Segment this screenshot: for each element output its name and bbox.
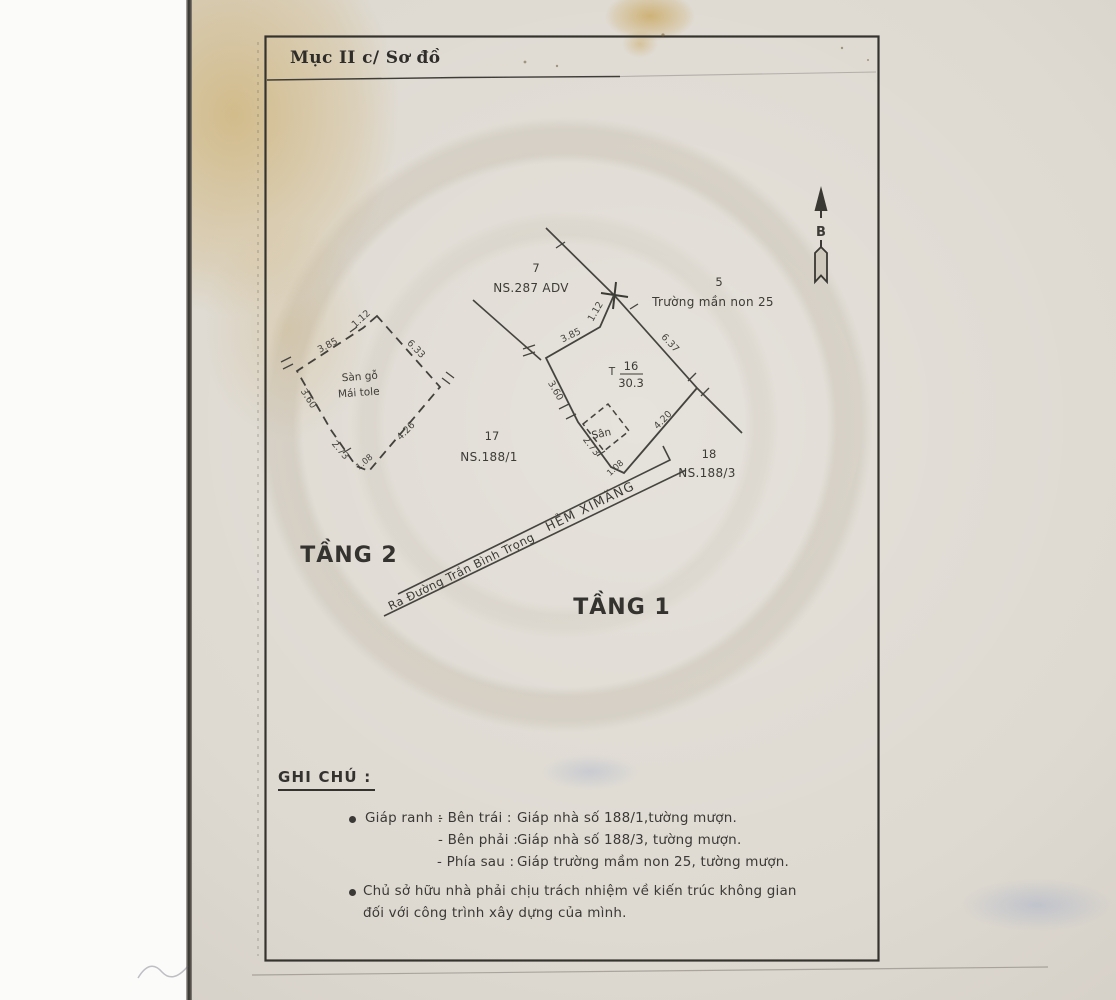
north-label: B [816, 225, 826, 240]
dim-f2-lower-left: 2.73 [329, 439, 351, 462]
floor2-structure-line1: Sàn gỗ [341, 369, 378, 384]
scanned-document-page: Mục II c/ Sơ đồ B [0, 0, 1116, 1000]
floor2-title: TẦNG 2 [300, 539, 397, 568]
title-underline [267, 77, 620, 81]
responsibility-line1: Chủ sở hữu nhà phải chịu trách nhiệm về … [363, 883, 797, 899]
dim-f2-upper-right: 6.33 [404, 338, 427, 361]
dim-f2-left: 3.60 [298, 387, 319, 411]
boundary-row-text: Giáp nhà số 188/1,tường mượn. [517, 810, 737, 826]
notes-heading: GHI CHÚ : [278, 768, 375, 791]
dim-f2-top: 1.12 [350, 308, 373, 330]
site-plan-drawing: B 7 NS.287 ADV 5 Trư [0, 0, 1116, 1000]
dimension-ticks [281, 242, 709, 456]
dim-f1-bottom: 1.08 [605, 458, 626, 478]
paper-specks [524, 33, 869, 67]
parcel-16-number: 16 [624, 359, 639, 373]
parcel-17-number: 17 [485, 429, 500, 443]
dim-f1-left: 3.60 [545, 379, 565, 403]
boundary-label: Giáp ranh : [365, 810, 442, 826]
parcel-18-name: NS.188/3 [678, 466, 735, 480]
bullet-icon [349, 889, 356, 896]
title-underline-faint [620, 72, 876, 77]
responsibility-line2: đối với công trình xây dựng của mình. [363, 905, 627, 921]
boundary-row-side: - Phía sau : [437, 854, 514, 870]
alley-direction-label: Ra Đường Trần Bình Trọng [386, 530, 537, 613]
pencil-scribble [138, 966, 188, 978]
floor1-title: TẦNG 1 [573, 591, 670, 620]
boundary-row-text: Giáp nhà số 188/3, tường mượn. [517, 832, 741, 848]
alley-name-label: HẺM XIMĂNG [542, 477, 637, 534]
parcel-16-area: 30.3 [618, 376, 644, 390]
dim-f2-lower-right: 4.26 [395, 420, 418, 443]
parcel-7-number: 7 [532, 261, 539, 275]
parcel-16-prefix: T [608, 366, 616, 378]
boundary-row-side: - Bên trái : [438, 810, 512, 826]
parcel-7-name: NS.287 ADV [493, 281, 569, 295]
bullet-icon [349, 816, 356, 823]
parcel-18-number: 18 [702, 447, 717, 461]
dim-f1-upper-left: 3.85 [559, 326, 583, 345]
boundary-row-side: - Bên phải : [438, 832, 518, 848]
parcel-5-number: 5 [715, 275, 722, 289]
parcel-5-name: Trường mần non 25 [651, 295, 774, 309]
page-bottom-line [252, 967, 1048, 975]
dim-f2-upper-left: 3.85 [316, 336, 340, 356]
parcel-17-name: NS.188/1 [460, 450, 517, 464]
boundary-line-west [473, 300, 541, 360]
boundary-row-text: Giáp trường mầm non 25, tường mượn. [517, 854, 789, 870]
floor2-structure-line2: Mái tole [338, 386, 380, 401]
dim-f1-upper-right: 6.37 [659, 332, 681, 355]
